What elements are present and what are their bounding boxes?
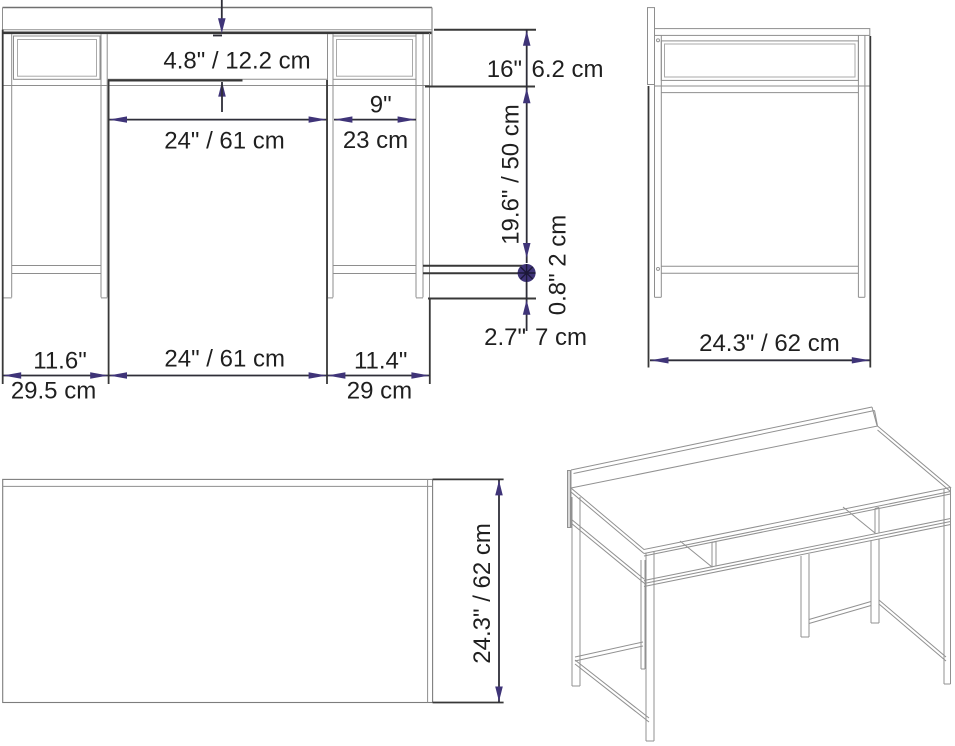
svg-text:6.2 cm: 6.2 cm: [532, 56, 604, 83]
svg-text:19.6" / 50 cm: 19.6" / 50 cm: [498, 104, 525, 245]
svg-text:9": 9": [370, 92, 392, 119]
svg-text:7 cm: 7 cm: [535, 324, 587, 351]
svg-text:23 cm: 23 cm: [343, 127, 408, 154]
svg-text:24.3" / 62 cm: 24.3" / 62 cm: [699, 330, 840, 357]
svg-text:0.8" 2 cm: 0.8" 2 cm: [545, 215, 572, 316]
svg-text:4.8" / 12.2 cm: 4.8" / 12.2 cm: [163, 48, 310, 75]
svg-text:24" / 61 cm: 24" / 61 cm: [164, 128, 285, 155]
svg-text:29.5 cm: 29.5 cm: [11, 378, 96, 405]
svg-text:16": 16": [487, 56, 522, 83]
svg-text:29 cm: 29 cm: [347, 378, 412, 405]
svg-text:24" / 61 cm: 24" / 61 cm: [164, 346, 285, 373]
svg-text:11.4": 11.4": [354, 348, 407, 375]
svg-text:24.3" / 62 cm: 24.3" / 62 cm: [469, 523, 496, 664]
svg-text:2.7": 2.7": [484, 324, 526, 351]
svg-text:11.6": 11.6": [33, 348, 86, 375]
